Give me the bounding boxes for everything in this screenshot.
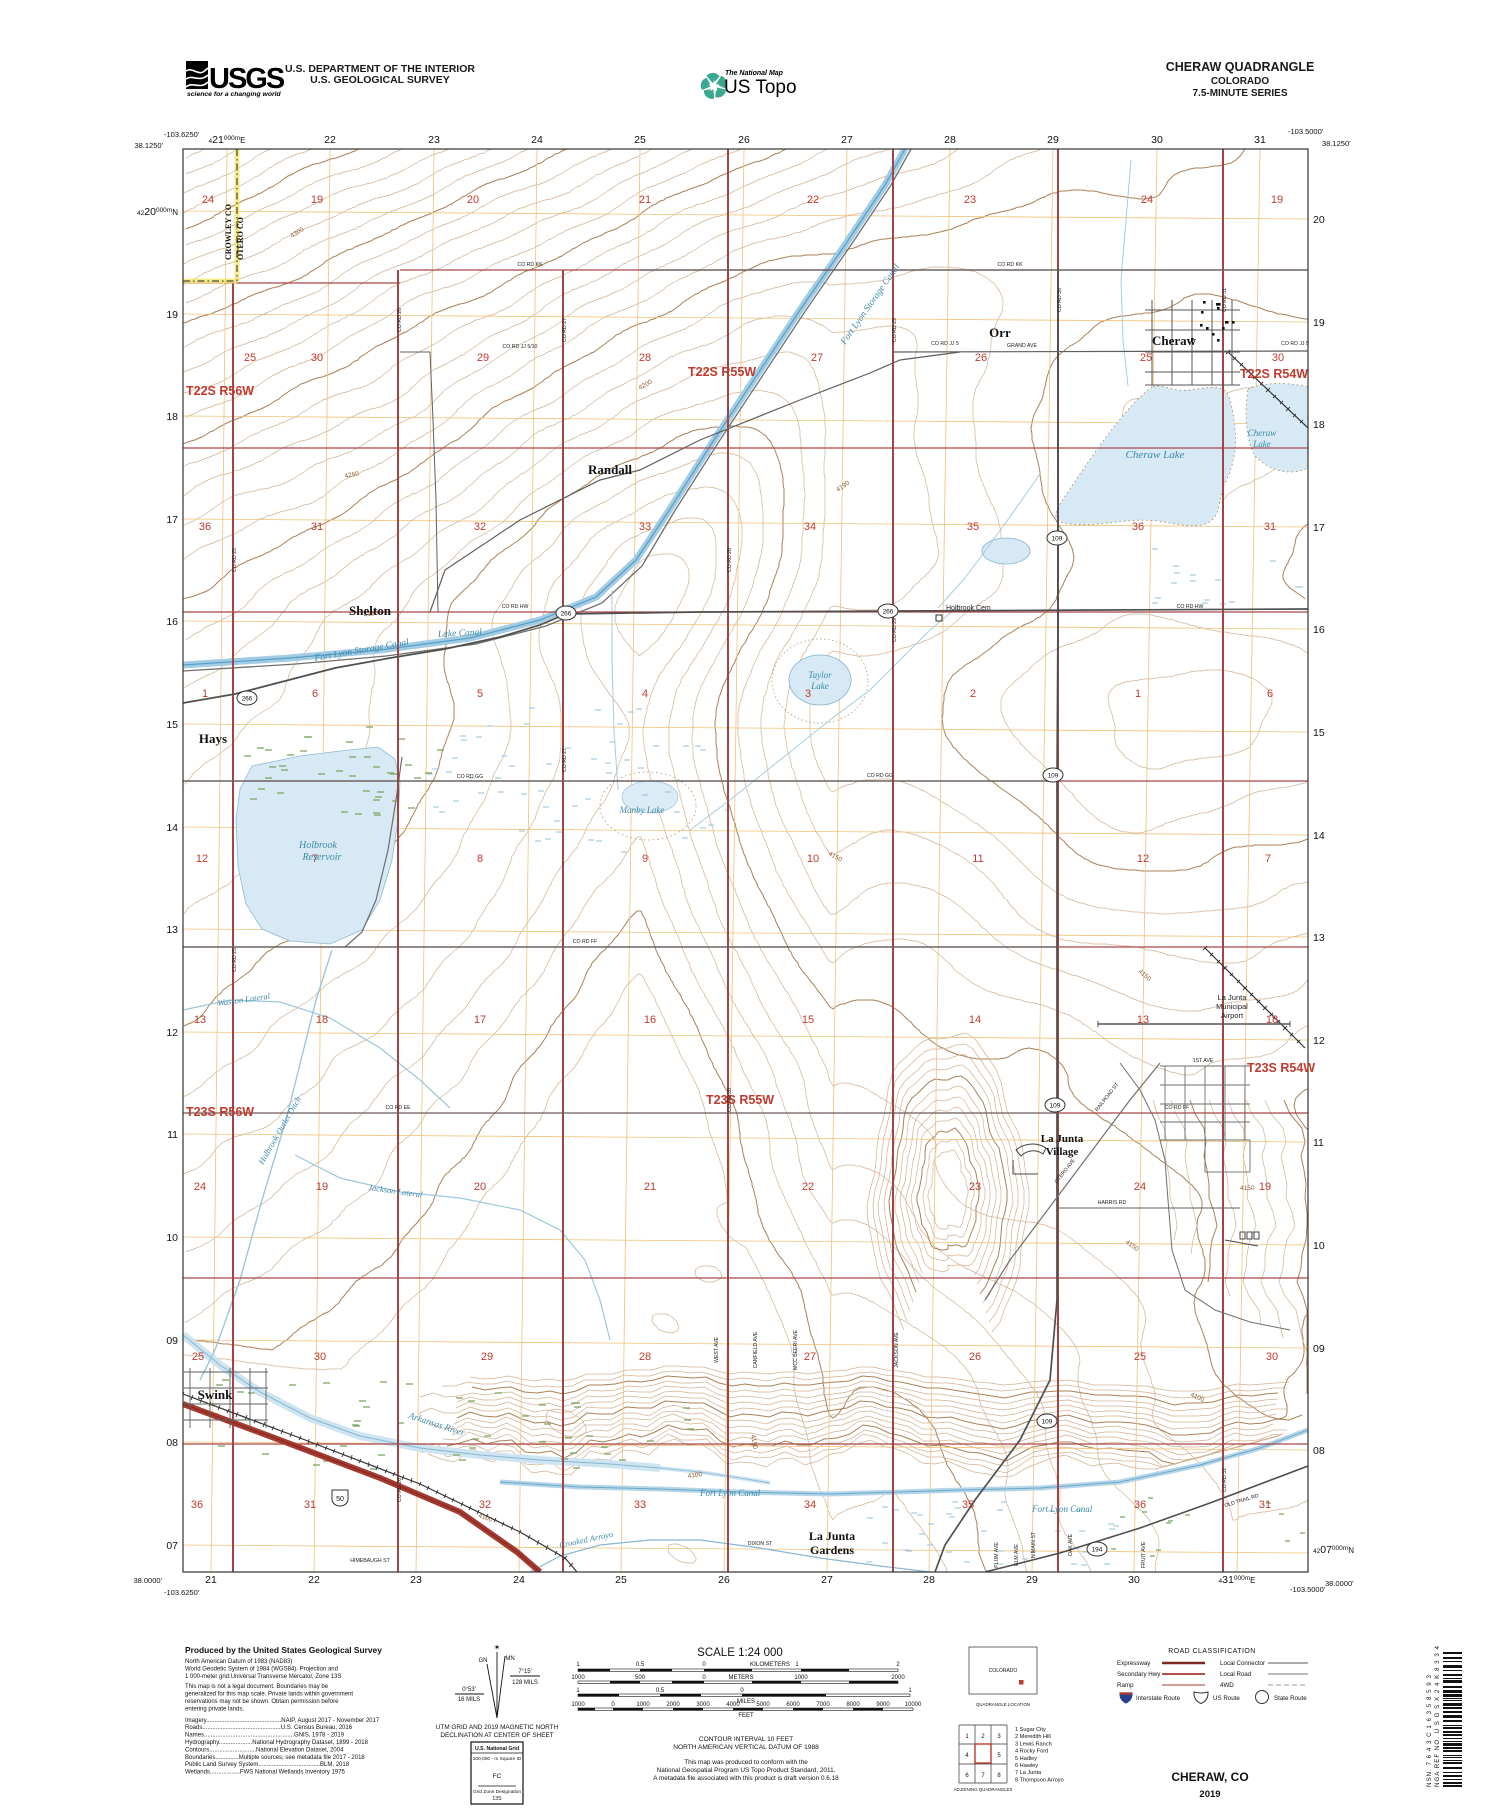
svg-text:1000: 1000 (571, 1702, 585, 1708)
svg-text:31: 31 (1259, 1499, 1271, 1511)
svg-text:CO RD 31: CO RD 31 (1222, 288, 1228, 312)
svg-text:HARRIS RD: HARRIS RD (1098, 1200, 1127, 1206)
svg-text:11: 11 (972, 853, 983, 865)
svg-text:CO RD JJ 5: CO RD JJ 5 (931, 341, 959, 347)
svg-text:La Junta: La Junta (1218, 993, 1248, 1002)
svg-text:09: 09 (166, 1335, 178, 1347)
svg-text:N MAIN ST: N MAIN ST (1031, 1531, 1037, 1558)
svg-text:19: 19 (1259, 1181, 1271, 1193)
svg-text:KILOMETERS: KILOMETERS (750, 1661, 790, 1668)
svg-text:100,000 - m Square ID: 100,000 - m Square ID (473, 1756, 522, 1762)
svg-text:7°15': 7°15' (518, 1669, 532, 1675)
svg-text:13: 13 (1137, 1014, 1149, 1026)
svg-text:CO RD 31: CO RD 31 (1222, 1468, 1228, 1492)
svg-text:26: 26 (969, 1351, 981, 1363)
svg-text:Orr: Orr (989, 325, 1011, 340)
svg-text:1: 1 (202, 688, 208, 700)
svg-text:50: 50 (336, 1496, 344, 1503)
svg-text:21: 21 (639, 194, 651, 206)
svg-text:CO RD KK: CO RD KK (997, 262, 1023, 268)
svg-text:18: 18 (1313, 419, 1325, 431)
svg-text:1 000-meter grid:Universal Tra: 1 000-meter grid:Universal Transverse Me… (185, 1674, 341, 1680)
svg-text:13: 13 (1313, 932, 1325, 944)
svg-text:15: 15 (802, 1014, 814, 1026)
svg-text:Grid Zone Designation: Grid Zone Designation (473, 1789, 521, 1795)
svg-text:Cheraw Lake: Cheraw Lake (1126, 449, 1185, 461)
svg-text:FEET: FEET (738, 1713, 754, 1719)
svg-text:1: 1 (1135, 688, 1141, 700)
svg-text:ADJOINING QUADRANGLES: ADJOINING QUADRANGLES (954, 1787, 1013, 1792)
svg-text:2019: 2019 (1199, 1789, 1220, 1800)
svg-text:Shelton: Shelton (349, 603, 392, 618)
svg-text:WEST AVE: WEST AVE (714, 1336, 720, 1363)
svg-text:Holbrook Cem: Holbrook Cem (946, 605, 991, 612)
svg-text:30: 30 (1151, 134, 1163, 146)
svg-text:National Geospatial Program US: National Geospatial Program US Topo Prod… (657, 1767, 836, 1774)
svg-text:PLUM AVE: PLUM AVE (994, 1542, 1000, 1568)
svg-text:3 Lewis Ranch: 3 Lewis Ranch (1015, 1741, 1052, 1747)
svg-text:14: 14 (969, 1014, 981, 1026)
svg-text:DECLINATION AT CENTER OF SHEET: DECLINATION AT CENTER OF SHEET (440, 1732, 553, 1739)
svg-text:CO RD 27: CO RD 27 (562, 318, 568, 342)
svg-text:0.5: 0.5 (636, 1662, 645, 1668)
svg-text:NSN. 7 6 4 3 C 1 6 3 5 8 5 9: NSN. 7 6 4 3 C 1 6 3 5 8 5 9 3 (1426, 1674, 1433, 1787)
svg-text:128 MILS: 128 MILS (512, 1680, 538, 1686)
svg-text:4000: 4000 (726, 1702, 740, 1708)
svg-text:State Route: State Route (1274, 1695, 1307, 1702)
svg-text:CO RD 26: CO RD 26 (397, 308, 403, 332)
svg-text:109: 109 (1050, 1103, 1061, 1110)
svg-text:Holbrook: Holbrook (298, 840, 338, 851)
svg-text:3: 3 (805, 688, 811, 700)
svg-text:25: 25 (634, 134, 646, 146)
svg-text:28: 28 (944, 134, 956, 146)
svg-text:QUADRANGLE LOCATION: QUADRANGLE LOCATION (976, 1702, 1030, 1707)
svg-text:JACKSON AVE: JACKSON AVE (894, 1332, 900, 1368)
svg-text:29: 29 (1047, 134, 1059, 146)
svg-text:SCALE 1:24 000: SCALE 1:24 000 (697, 1647, 783, 1659)
svg-text:28: 28 (923, 1574, 935, 1586)
svg-text:6000: 6000 (786, 1702, 800, 1708)
svg-text:22: 22 (324, 134, 336, 146)
svg-text:CO RD GG: CO RD GG (457, 774, 483, 780)
svg-text:Fort Lyon Canal: Fort Lyon Canal (1031, 1504, 1093, 1514)
svg-text:La Junta: La Junta (1041, 1133, 1084, 1145)
svg-text:109: 109 (1042, 1419, 1053, 1426)
svg-text:10: 10 (166, 1232, 178, 1244)
svg-text:19: 19 (311, 194, 323, 206)
svg-text:Ramp: Ramp (1117, 1682, 1134, 1689)
svg-text:CHERAW, CO: CHERAW, CO (1171, 1770, 1248, 1784)
svg-text:6 Hawley: 6 Hawley (1015, 1763, 1038, 1769)
svg-text:1000: 1000 (571, 1675, 585, 1681)
svg-text:20: 20 (467, 194, 479, 206)
svg-text:US Topo: US Topo (724, 77, 797, 98)
svg-text:31: 31 (1254, 134, 1266, 146)
svg-text:23: 23 (410, 1574, 422, 1586)
svg-text:Village: Village (1046, 1146, 1079, 1158)
svg-text:1 Sugar City: 1 Sugar City (1015, 1727, 1046, 1733)
svg-text:Municipal: Municipal (1216, 1002, 1248, 1011)
svg-text:GN: GN (479, 1658, 488, 1664)
svg-text:La Junta: La Junta (809, 1529, 855, 1543)
svg-text:A metadata file associated wit: A metadata file associated with this pro… (653, 1775, 839, 1782)
svg-text:23: 23 (969, 1181, 981, 1193)
svg-text:NORTH AMERICAN VERTICAL DATUM: NORTH AMERICAN VERTICAL DATUM OF 1988 (673, 1744, 819, 1751)
svg-text:7: 7 (1265, 853, 1271, 865)
svg-text:T22S R54W: T22S R54W (1240, 367, 1308, 381)
svg-text:NGA REF NO. U S G S X 2 4 K 8: NGA REF NO. U S G S X 2 4 K 8 3 3 4 (1434, 1645, 1441, 1787)
svg-text:5: 5 (477, 688, 483, 700)
svg-text:Hays: Hays (199, 731, 227, 746)
svg-text:16: 16 (644, 1014, 656, 1026)
svg-text:0.5: 0.5 (656, 1688, 665, 1694)
svg-text:8000: 8000 (846, 1702, 860, 1708)
svg-text:CHERAW QUADRANGLE: CHERAW QUADRANGLE (1166, 60, 1315, 74)
svg-text:CO RD JJ 5: CO RD JJ 5 (1281, 341, 1309, 347)
svg-text:26: 26 (975, 352, 987, 364)
svg-text:CO RD 26: CO RD 26 (397, 1478, 403, 1502)
svg-text:Boundaries..............Multip: Boundaries..............Multiple sources… (185, 1755, 365, 1761)
svg-text:7.5-MINUTE SERIES: 7.5-MINUTE SERIES (1192, 88, 1287, 99)
svg-text:Swink: Swink (198, 1387, 233, 1402)
svg-text:15: 15 (1313, 727, 1325, 739)
svg-text:24: 24 (202, 194, 214, 206)
svg-text:Local Road: Local Road (1220, 1671, 1252, 1678)
svg-text:16: 16 (1313, 624, 1325, 636)
svg-text:35: 35 (967, 521, 979, 533)
svg-text:30: 30 (314, 1351, 326, 1363)
svg-text:T23S R56W: T23S R56W (186, 1105, 254, 1119)
svg-text:CO RD 25: CO RD 25 (232, 948, 238, 972)
svg-text:5000: 5000 (756, 1702, 770, 1708)
svg-text:2000: 2000 (666, 1702, 680, 1708)
svg-text:38.0000': 38.0000' (1325, 1579, 1354, 1588)
svg-text:34: 34 (804, 1499, 816, 1511)
svg-text:Local Connector: Local Connector (1220, 1660, 1265, 1667)
svg-text:8 Thompson Arroyo: 8 Thompson Arroyo (1015, 1777, 1064, 1783)
svg-text:1000: 1000 (794, 1675, 808, 1681)
svg-text:-103.6250': -103.6250' (164, 130, 200, 139)
svg-text:36: 36 (1134, 1499, 1146, 1511)
svg-text:CO RD EE: CO RD EE (385, 1105, 411, 1111)
svg-text:✶: ✶ (494, 1643, 501, 1652)
svg-text:UTM GRID AND 2019 MAGNETIC NOR: UTM GRID AND 2019 MAGNETIC NORTH (436, 1724, 559, 1731)
svg-text:reservations may not be shown.: reservations may not be shown. Obtain pe… (185, 1699, 339, 1705)
svg-text:T23S R54W: T23S R54W (1247, 1061, 1315, 1075)
svg-text:CO RD 28: CO RD 28 (727, 548, 733, 572)
svg-text:CO RD 28: CO RD 28 (727, 1088, 733, 1112)
svg-text:21: 21 (644, 1181, 656, 1193)
svg-text:33: 33 (634, 1499, 646, 1511)
svg-text:-103.5000': -103.5000' (1290, 1585, 1326, 1594)
svg-text:12: 12 (1137, 853, 1149, 865)
svg-text:CONTOUR INTERVAL 10 FEET: CONTOUR INTERVAL 10 FEET (699, 1736, 793, 1743)
svg-text:13: 13 (194, 1014, 206, 1026)
svg-text:36: 36 (1132, 521, 1144, 533)
svg-text:COLORADO: COLORADO (989, 1668, 1018, 1674)
svg-text:23: 23 (964, 194, 976, 206)
svg-text:Taylor: Taylor (808, 670, 832, 680)
svg-text:2 Meredith Hill: 2 Meredith Hill (1015, 1734, 1051, 1740)
svg-text:World Geodetic System of 1984: World Geodetic System of 1984 (WGS84). P… (185, 1666, 338, 1672)
svg-text:12: 12 (1313, 1035, 1325, 1047)
svg-text:Gardens: Gardens (810, 1543, 854, 1557)
svg-text:METERS: METERS (728, 1675, 753, 1681)
svg-text:3000: 3000 (696, 1702, 710, 1708)
svg-text:-103.6250': -103.6250' (164, 1588, 200, 1597)
svg-text:MILES: MILES (737, 1699, 755, 1705)
svg-text:24: 24 (1141, 194, 1153, 206)
svg-text:FC: FC (493, 1773, 502, 1780)
svg-text:30: 30 (1266, 1351, 1278, 1363)
svg-text:10: 10 (807, 853, 819, 865)
svg-text:Lake: Lake (810, 681, 829, 691)
svg-text:32: 32 (474, 521, 486, 533)
svg-text:CO RD 27: CO RD 27 (562, 748, 568, 772)
svg-text:CANFIELD AVE: CANFIELD AVE (753, 1331, 759, 1368)
svg-text:13: 13 (166, 924, 178, 936)
svg-text:0°53': 0°53' (462, 1687, 476, 1693)
svg-text:CO RD FF: CO RD FF (1165, 1105, 1190, 1111)
svg-text:22: 22 (807, 194, 819, 206)
svg-text:26: 26 (738, 134, 750, 146)
svg-text:Lake: Lake (1252, 439, 1271, 449)
svg-text:Public Land Survey System.....: Public Land Survey System...............… (185, 1762, 350, 1768)
svg-text:09: 09 (1313, 1343, 1325, 1355)
svg-text:US Route: US Route (1213, 1695, 1240, 1702)
svg-text:Manby Lake: Manby Lake (619, 805, 665, 815)
svg-text:500: 500 (635, 1675, 646, 1681)
svg-text:4WD: 4WD (1220, 1682, 1234, 1689)
svg-text:T22S R56W: T22S R56W (186, 384, 254, 398)
svg-text:34: 34 (804, 521, 816, 533)
svg-text:31: 31 (304, 1499, 316, 1511)
svg-text:1ST AVE: 1ST AVE (1193, 1058, 1214, 1064)
svg-text:T22S R55W: T22S R55W (688, 365, 756, 379)
svg-text:CROWLEY CO: CROWLEY CO (224, 204, 233, 260)
svg-text:The National Map: The National Map (725, 70, 784, 77)
svg-text:DIXON ST: DIXON ST (748, 1541, 773, 1547)
svg-text:31: 31 (311, 521, 323, 533)
svg-text:31: 31 (1264, 521, 1276, 533)
svg-text:30: 30 (1128, 1574, 1140, 1586)
svg-text:CO RD 25: CO RD 25 (232, 548, 238, 572)
svg-text:T23S R55W: T23S R55W (706, 1093, 774, 1107)
svg-text:27: 27 (804, 1351, 816, 1363)
svg-text:30: 30 (1272, 352, 1284, 364)
svg-text:COLORADO: COLORADO (1211, 76, 1270, 87)
svg-text:16: 16 (166, 616, 178, 628)
svg-text:18: 18 (166, 411, 178, 423)
svg-text:194: 194 (1092, 1547, 1103, 1554)
svg-text:35: 35 (962, 1499, 974, 1511)
svg-text:26: 26 (718, 1574, 730, 1586)
svg-text:6: 6 (1267, 688, 1273, 700)
svg-text:entering private lands.: entering private lands. (185, 1706, 244, 1712)
svg-text:28: 28 (639, 352, 651, 364)
svg-text:North American Datum of 1983 (: North American Datum of 1983 (NAD83) (185, 1659, 292, 1665)
svg-text:U.S. National Grid: U.S. National Grid (475, 1746, 519, 1752)
svg-text:CO RD 29: CO RD 29 (892, 618, 898, 642)
svg-text:19: 19 (166, 309, 178, 321)
svg-text:33: 33 (639, 521, 651, 533)
svg-text:20: 20 (474, 1181, 486, 1193)
svg-text:Hydrography...................: Hydrography....................National … (185, 1740, 369, 1746)
svg-text:109: 109 (1048, 773, 1059, 780)
svg-text:Produced by the United States: Produced by the United States Geological… (185, 1645, 382, 1655)
svg-text:Secondary Hwy: Secondary Hwy (1117, 1671, 1161, 1678)
svg-text:38.1250': 38.1250' (134, 141, 163, 150)
svg-text:25: 25 (1140, 352, 1152, 364)
svg-text:-103.5000': -103.5000' (1288, 127, 1324, 136)
svg-text:266: 266 (242, 696, 253, 703)
svg-text:16 MILS: 16 MILS (458, 1697, 480, 1703)
svg-text:10: 10 (1313, 1240, 1325, 1252)
svg-text:This map was produced to confo: This map was produced to conform with th… (684, 1759, 808, 1766)
svg-text:22: 22 (308, 1574, 320, 1586)
svg-text:17: 17 (474, 1014, 486, 1026)
svg-text:8: 8 (477, 853, 483, 865)
svg-text:CO RD HW: CO RD HW (1177, 604, 1204, 610)
svg-text:13S: 13S (492, 1796, 502, 1802)
svg-text:FRUIT AVE: FRUIT AVE (1141, 1541, 1147, 1568)
svg-text:9: 9 (642, 853, 648, 865)
svg-text:21: 21 (205, 1574, 217, 1586)
svg-text:OAK AVE: OAK AVE (1068, 1533, 1074, 1556)
svg-text:Roads.........................: Roads...................................… (185, 1725, 353, 1731)
svg-text:This map is not a legal docume: This map is not a legal document. Bounda… (185, 1684, 329, 1690)
svg-text:2: 2 (970, 688, 976, 700)
svg-text:CO RD 29: CO RD 29 (892, 318, 898, 342)
svg-text:ELM AVE: ELM AVE (1014, 1544, 1020, 1566)
svg-text:Wetlands..................FWS: Wetlands..................FWS National W… (185, 1770, 346, 1776)
svg-text:Expressway: Expressway (1117, 1660, 1151, 1667)
svg-text:GRAND AVE: GRAND AVE (1007, 343, 1037, 349)
svg-text:18: 18 (1266, 1014, 1278, 1026)
svg-text:HIMEBAUGH ST: HIMEBAUGH ST (350, 1558, 390, 1564)
svg-text:17: 17 (1313, 522, 1325, 534)
svg-text:109: 109 (1052, 536, 1063, 543)
svg-text:Randall: Randall (588, 462, 632, 477)
svg-text:27: 27 (841, 134, 853, 146)
svg-text:24: 24 (513, 1574, 525, 1586)
svg-text:11: 11 (1313, 1137, 1324, 1149)
svg-text:4150: 4150 (1240, 1185, 1255, 1192)
svg-text:4 Rocky Ford: 4 Rocky Ford (1015, 1749, 1048, 1755)
svg-text:11: 11 (167, 1129, 178, 1141)
svg-text:7 La Junta: 7 La Junta (1015, 1770, 1042, 1776)
svg-text:5 Hadley: 5 Hadley (1015, 1756, 1037, 1762)
svg-text:Imagery.......................: Imagery.................................… (185, 1718, 380, 1724)
svg-text:19: 19 (316, 1181, 328, 1193)
svg-text:Names.........................: Names...................................… (185, 1733, 345, 1739)
svg-text:23: 23 (428, 134, 440, 146)
svg-text:32: 32 (479, 1499, 491, 1511)
svg-text:Contours......................: Contours............................Nati… (185, 1747, 344, 1753)
svg-text:19: 19 (1271, 194, 1283, 206)
svg-text:7000: 7000 (816, 1702, 830, 1708)
svg-text:2000: 2000 (891, 1675, 905, 1681)
svg-text:10000: 10000 (905, 1702, 922, 1708)
svg-text:Fort Lyon Canal: Fort Lyon Canal (699, 1488, 761, 1498)
svg-text:25: 25 (192, 1351, 204, 1363)
svg-text:36: 36 (199, 521, 211, 533)
svg-text:27: 27 (821, 1574, 833, 1586)
svg-text:08: 08 (166, 1437, 178, 1449)
svg-text:24: 24 (1134, 1181, 1146, 1193)
svg-text:28: 28 (639, 1351, 651, 1363)
svg-text:12: 12 (196, 853, 208, 865)
svg-text:22: 22 (802, 1181, 814, 1193)
svg-text:38.1250': 38.1250' (1322, 139, 1351, 148)
svg-text:24: 24 (531, 134, 543, 146)
svg-text:25: 25 (1134, 1351, 1146, 1363)
svg-text:08: 08 (1313, 1445, 1325, 1457)
svg-text:MCC BEERI AVE: MCC BEERI AVE (793, 1329, 799, 1370)
svg-text:CO RD JJ 5/10: CO RD JJ 5/10 (503, 344, 538, 350)
svg-text:24: 24 (194, 1181, 206, 1193)
svg-text:CO RD GG: CO RD GG (867, 773, 893, 779)
svg-text:Airport: Airport (1221, 1011, 1244, 1020)
svg-text:17: 17 (166, 514, 178, 526)
svg-text:07: 07 (166, 1540, 178, 1552)
svg-text:Cheraw: Cheraw (1248, 428, 1277, 438)
svg-text:25: 25 (615, 1574, 627, 1586)
svg-text:Cheraw: Cheraw (1152, 333, 1197, 348)
svg-text:14: 14 (1313, 830, 1325, 842)
svg-text:29: 29 (481, 1351, 493, 1363)
svg-text:25: 25 (244, 352, 256, 364)
svg-text:36: 36 (191, 1499, 203, 1511)
svg-text:OTERO CO: OTERO CO (236, 217, 245, 260)
svg-text:4: 4 (642, 688, 648, 700)
svg-text:CO RD 30: CO RD 30 (1057, 288, 1063, 312)
svg-text:science for a changing world: science for a changing world (187, 91, 282, 98)
svg-text:19: 19 (1313, 317, 1325, 329)
svg-text:266: 266 (883, 609, 894, 616)
svg-text:18: 18 (316, 1014, 328, 1026)
svg-text:Reservoir: Reservoir (302, 852, 342, 863)
svg-text:29: 29 (1026, 1574, 1038, 1586)
svg-text:266: 266 (561, 611, 572, 618)
svg-text:30: 30 (311, 352, 323, 364)
svg-text:14: 14 (166, 822, 178, 834)
svg-text:ROAD CLASSIFICATION: ROAD CLASSIFICATION (1168, 1648, 1255, 1655)
svg-text:Interstate Route: Interstate Route (1136, 1695, 1181, 1702)
svg-text:15: 15 (166, 719, 178, 731)
svg-text:U.S. GEOLOGICAL SURVEY: U.S. GEOLOGICAL SURVEY (310, 74, 450, 86)
svg-text:CO RD HW: CO RD HW (502, 604, 529, 610)
svg-text:CO RD FF: CO RD FF (573, 939, 598, 945)
svg-text:6: 6 (312, 688, 318, 700)
svg-text:CO RD KK: CO RD KK (517, 262, 543, 268)
svg-text:MN: MN (505, 1656, 514, 1662)
svg-text:29: 29 (477, 352, 489, 364)
svg-text:1000: 1000 (636, 1702, 650, 1708)
svg-text:12: 12 (166, 1027, 178, 1039)
svg-text:9000: 9000 (876, 1702, 890, 1708)
svg-text:20: 20 (1313, 214, 1325, 226)
svg-text:27: 27 (811, 352, 823, 364)
svg-text:generalized for this map scale: generalized for this map scale. Private … (185, 1692, 353, 1698)
svg-text:38.0000': 38.0000' (133, 1576, 162, 1585)
